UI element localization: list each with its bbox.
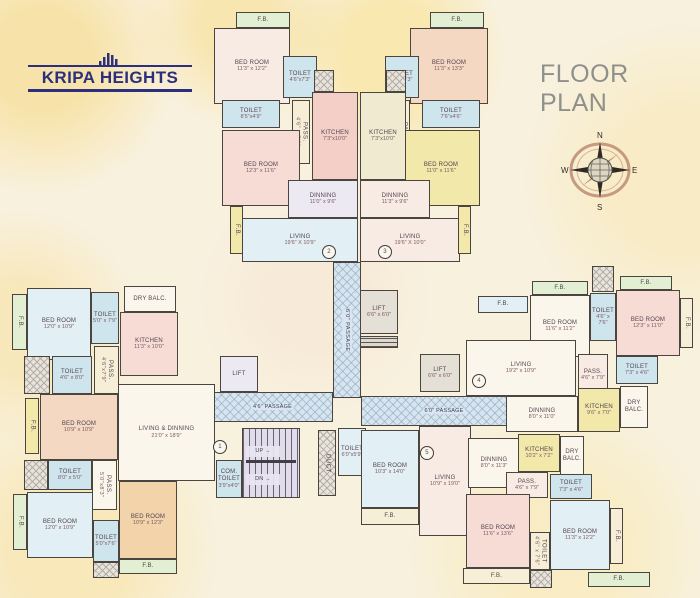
unit-1-badge: 1	[213, 440, 227, 454]
toilet-r2-label: TOILET	[626, 364, 648, 371]
dinning-t2-label: DINNING	[310, 193, 337, 200]
duct-l2	[24, 460, 48, 490]
kitchen-t2: KITCHEN7'3"x10'0"	[312, 92, 358, 180]
kitchen-t3-label: KITCHEN	[369, 130, 397, 137]
fb-r4-label: F.B.	[683, 317, 690, 329]
fb-u5d-label: F.B.	[613, 576, 624, 583]
unit-4-badge-label: 4	[477, 378, 481, 385]
toilet-r2: TOILET7'3" x 4'6"	[616, 356, 658, 384]
fb-side-t2: F.B.	[230, 206, 243, 254]
bedroom-r2-label: BED ROOM	[631, 317, 665, 324]
toilet-t2b: TOILET8'5"x4'9"	[222, 100, 280, 128]
fb-side-t2-label: F.B.	[233, 224, 240, 236]
toilet-l3-label: TOILET	[59, 469, 81, 476]
kitchen-u5-dims: 10'2" x 7'2"	[525, 453, 552, 459]
fb-r3: F.B.	[620, 276, 672, 290]
bedroom-t2: BED ROOM11'3" x 12'2"	[214, 28, 290, 104]
fb-r2-label: F.B.	[554, 285, 565, 292]
stairs-dn-label-label: DN →	[255, 476, 271, 482]
passage-vertical: 6'0" PASSAGE	[333, 262, 361, 398]
living-t3-dims: 19'6" X 10'0"	[394, 240, 425, 246]
dinning-t2-dims: 11'0" x 9'6"	[310, 199, 337, 205]
toilet-l4-dims: 5'0"x7'6"	[96, 541, 117, 547]
pass-l2-label: PASS.	[104, 475, 111, 495]
toilet-l4-label: TOILET	[95, 535, 117, 542]
toilet-u5b-dims: 4'6" x 7'6"	[534, 536, 540, 566]
duct-l1	[24, 356, 50, 394]
lift-right: LIFT6'6" x 6'0"	[420, 354, 460, 392]
fb-l1: F.B.	[12, 294, 27, 350]
bedroom-u5a-label: BED ROOM	[373, 463, 407, 470]
duct-stairs-label: DUCT	[324, 454, 331, 473]
dinning-r1-label: DINNING	[529, 408, 556, 415]
kitchen-t2-dims: 7'3"x10'0"	[323, 136, 347, 142]
fb-l3: F.B.	[13, 494, 27, 550]
toilet-u5a-label: TOILET	[560, 480, 582, 487]
lift-top-dims: 6'6" x 6'0"	[367, 312, 391, 318]
toilet-r2-dims: 7'3" x 4'6"	[625, 370, 649, 376]
bedroom-l2-dims: 10'9" x 10'9"	[64, 427, 94, 433]
bedroom-u5a-dims: 10'3" x 14'0"	[375, 469, 405, 475]
living-t3-label: LIVING	[400, 234, 421, 241]
bedroom-l1: BED ROOM12'0" x 10'9"	[27, 288, 91, 360]
toilet-t3b-label: TOILET	[440, 108, 462, 115]
unit-3-badge: 3	[378, 245, 392, 259]
toilet-u5a: TOILET7'3" x 4'6"	[550, 474, 592, 499]
kitchen-u5: KITCHEN10'2" x 7'2"	[518, 434, 560, 472]
passage-left-label: 4'6" PASSAGE	[251, 404, 294, 410]
lift-left: LIFT	[220, 356, 258, 392]
toilet-t2b-dims: 8'5"x4'9"	[241, 114, 262, 120]
bedroom-t2b-dims: 12'3" x 11'6"	[246, 168, 276, 174]
toilet-l1-dims: 5'0" x 7'9"	[93, 318, 117, 324]
drybalc-l1-label: DRY BALC.	[133, 296, 166, 303]
bedroom-l2: BED ROOM10'9" x 10'9"	[40, 394, 118, 460]
living-t2: LIVING19'6" X 10'9"	[242, 218, 358, 262]
dinning-r1-dims: 8'0" x 11'0"	[529, 414, 556, 420]
floor-plan-page: KRIPA HEIGHTS FLOOR PLAN N E S W F.B.BED…	[0, 0, 700, 598]
bedroom-l4-label: BED ROOM	[131, 514, 165, 521]
pass-l2: PASS.5'0"x8'3"	[92, 460, 117, 510]
fb-u5a: F.B.	[361, 508, 419, 525]
toilet-t3b: TOILET7'6"x4'6"	[422, 100, 480, 128]
fb-side-t3-label: F.B.	[461, 224, 468, 236]
fb-l2-label: F.B.	[29, 420, 36, 432]
toilet-u5a-dims: 7'3" x 4'6"	[559, 487, 583, 493]
fb-top-left: F.B.	[236, 12, 290, 28]
kitchen-t2-label: KITCHEN	[321, 130, 349, 137]
unit-3-badge-label: 3	[383, 249, 387, 256]
pass-t2-label: PASS.	[301, 122, 308, 142]
bedroom-t3b-label: BED ROOM	[424, 162, 458, 169]
pass-l2-dims: 5'0"x8'3"	[98, 472, 104, 498]
drybalc-r1-label: DRY BALC.	[621, 400, 647, 413]
duct-stairs: DUCT	[318, 430, 336, 496]
unit-5-badge: 5	[420, 446, 434, 460]
fb-l1-label: F.B.	[16, 316, 23, 328]
living-r1-label: LIVING	[511, 362, 532, 369]
unit-2-badge: 2	[322, 245, 336, 259]
lift-left-label: LIFT	[232, 371, 245, 378]
kitchen-t3: KITCHEN7'3"x10'0"	[360, 92, 406, 180]
lift-right-dims: 6'6" x 6'0"	[428, 373, 452, 379]
living-l1-dims: 21'0" x 18'9"	[151, 433, 181, 439]
stairs-up-label: UP →	[246, 446, 280, 457]
bedroom-u5a: BED ROOM10'3" x 14'0"	[361, 430, 419, 508]
com-toilet-dims: 3'9"x4'0"	[219, 483, 240, 489]
bedroom-t3-dims: 11'3" x 13'3"	[434, 66, 464, 72]
bedroom-l4: BED ROOM10'9" x 12'3"	[119, 481, 177, 559]
bedroom-u5b: BED ROOM11'6" x 13'6"	[466, 494, 530, 568]
toilet-l3: TOILET8'0" x 5'0"	[48, 460, 92, 490]
drybalc-l1: DRY BALC.	[124, 286, 176, 312]
fb-l4: F.B.	[119, 559, 177, 574]
fb-u5b-label: F.B.	[613, 530, 620, 542]
living-t2-dims: 19'6" X 10'9"	[284, 240, 315, 246]
unit-2-badge-label: 2	[327, 249, 331, 256]
bedroom-l3: BED ROOM12'0" x 10'9"	[27, 492, 93, 558]
toilet-u5b-label: TOILET	[540, 539, 547, 563]
com-toilet: COM. TOILET3'9"x4'0"	[216, 460, 242, 498]
kitchen-l1-label: KITCHEN	[135, 338, 163, 345]
pass-u5-dims: 4'6" x 7'9"	[515, 485, 539, 491]
bedroom-u5b-dims: 11'6" x 13'6"	[483, 531, 513, 537]
bedroom-l1-dims: 12'0" x 10'9"	[44, 324, 74, 330]
pass-u5-label: PASS.	[518, 479, 536, 486]
bedroom-t3-label: BED ROOM	[432, 60, 466, 67]
fb-side-t3: F.B.	[458, 206, 471, 254]
bedroom-r1-label: BED ROOM	[543, 320, 577, 327]
toilet-r1: TOILET4'6" x 7'6"	[590, 293, 616, 341]
kitchen-l1: KITCHEN11'3" x 10'0"	[120, 312, 178, 376]
living-u5-label: LIVING	[435, 475, 456, 482]
living-r1: LIVING19'2" x 10'9"	[466, 340, 576, 396]
living-r1-dims: 19'2" x 10'9"	[506, 368, 536, 374]
bedroom-t2-label: BED ROOM	[235, 60, 269, 67]
living-l1: LIVING & DINNING21'0" x 18'9"	[118, 384, 215, 481]
pass-r1-label: PASS.	[584, 369, 602, 376]
stairs	[242, 428, 300, 498]
bedroom-r2-dims: 12'3" x 11'0"	[633, 323, 663, 329]
kitchen-l1-dims: 11'3" x 10'0"	[134, 344, 164, 350]
passage-vertical-label: 6'0" PASSAGE	[342, 309, 352, 352]
drybalc-u5: DRY BALC.	[560, 436, 584, 476]
lift-top: LIFT6'6" x 6'0"	[360, 290, 398, 334]
passage-right: 6'0" PASSAGE	[361, 396, 527, 426]
toilet-u5b: TOILET4'6" x 7'6"	[530, 532, 550, 570]
stairs-dn-label: DN →	[246, 474, 280, 485]
bedroom-t2-dims: 11'3" x 12'2"	[237, 66, 267, 72]
toilet-core-dims: 6'0"x5'9"	[342, 452, 363, 458]
fb-r4: F.B.	[680, 298, 693, 348]
drybalc-r1: DRY BALC.	[620, 386, 648, 428]
duct-top-a	[314, 70, 334, 92]
toilet-l2: TOILET4'6" x 8'0"	[52, 356, 92, 394]
pass-r1-dims: 4'6" x 7'9"	[581, 375, 605, 381]
toilet-t3b-dims: 7'6"x4'6"	[441, 114, 462, 120]
fb-l2: F.B.	[25, 398, 39, 454]
bedroom-l3-label: BED ROOM	[43, 519, 77, 526]
fb-r2: F.B.	[532, 281, 588, 295]
duct-top-b	[386, 70, 406, 92]
fb-u5c-label: F.B.	[491, 573, 502, 580]
dinning-u5-dims: 8'0" x 11'3"	[481, 463, 508, 469]
stairs-up-label-label: UP →	[255, 448, 270, 454]
kitchen-u5-label: KITCHEN	[525, 447, 553, 454]
duct-l3	[93, 562, 119, 578]
passage-left: 4'6" PASSAGE	[212, 392, 333, 422]
dinning-r1: DINNING8'0" x 11'0"	[506, 396, 578, 432]
bedroom-l4-dims: 10'9" x 12'3"	[133, 520, 163, 526]
fb-top-right-label: F.B.	[451, 17, 462, 24]
lift-top-label: LIFT	[372, 306, 385, 313]
fb-top-right: F.B.	[430, 12, 484, 28]
unit-5-badge-label: 5	[425, 450, 429, 457]
bedroom-t3: BED ROOM11'3" x 13'3"	[410, 28, 488, 104]
living-l1-label: LIVING & DINNING	[139, 426, 195, 433]
toilet-l2-label: TOILET	[61, 369, 83, 376]
duct-r1	[592, 266, 614, 292]
passage-right-label: 6'0" PASSAGE	[423, 408, 466, 414]
fb-top-left-label: F.B.	[257, 17, 268, 24]
fb-u5c: F.B.	[463, 568, 530, 584]
toilet-l4: TOILET5'0"x7'6"	[93, 520, 119, 562]
fb-u5a-label: F.B.	[384, 513, 395, 520]
living-u5: LIVING10'9" x 19'0"	[419, 426, 471, 536]
toilet-l3-dims: 8'0" x 5'0"	[58, 475, 82, 481]
dinning-u5-label: DINNING	[481, 457, 508, 464]
pass-l1: PASS.4'6"x7'9"	[94, 346, 119, 394]
toilet-l2-dims: 4'6" x 8'0"	[60, 375, 84, 381]
drybalc-u5-label: DRY BALC.	[561, 449, 583, 462]
bedroom-t3b-dims: 11'0" x 11'6"	[426, 168, 455, 174]
lift-machine	[360, 336, 398, 348]
bedroom-t2b-label: BED ROOM	[244, 162, 278, 169]
toilet-t2a-dims: 4'6"x7'3"	[290, 77, 311, 83]
living-t3: LIVING19'6" X 10'0"	[360, 218, 460, 262]
pass-l1-dims: 4'6"x7'9"	[100, 357, 106, 383]
bedroom-u5c-label: BED ROOM	[563, 529, 597, 536]
bedroom-r1-dims: 11'6" x 11'2"	[545, 326, 574, 332]
kitchen-r1-label: KITCHEN	[585, 404, 613, 411]
toilet-l1: TOILET5'0" x 7'9"	[91, 292, 119, 344]
lift-right-label: LIFT	[433, 367, 446, 374]
fb-r1: F.B.	[478, 296, 528, 313]
toilet-l1-label: TOILET	[94, 312, 116, 319]
bedroom-l1-label: BED ROOM	[42, 318, 76, 325]
bedroom-l2-label: BED ROOM	[62, 421, 96, 428]
dinning-t3-label: DINNING	[382, 193, 409, 200]
living-u5-dims: 10'9" x 19'0"	[430, 481, 460, 487]
dinning-t3: DINNING11'3" x 9'6"	[360, 180, 430, 218]
kitchen-r1-dims: 9'6" x 7'0"	[587, 410, 611, 416]
kitchen-r1: KITCHEN9'6" x 7'0"	[578, 388, 620, 432]
bedroom-u5c: BED ROOM11'3" x 12'2"	[550, 500, 610, 570]
toilet-r1-label: TOILET	[592, 308, 614, 315]
toilet-core-label: TOILET	[341, 446, 363, 453]
unit-1-badge-label: 1	[218, 444, 222, 451]
bedroom-r2: BED ROOM12'3" x 11'0"	[616, 290, 680, 356]
bedroom-u5c-dims: 11'3" x 12'2"	[565, 535, 595, 541]
bedroom-u5b-label: BED ROOM	[481, 525, 515, 532]
fb-l3-label: F.B.	[17, 516, 24, 528]
bedroom-l3-dims: 12'0" x 10'9"	[45, 525, 75, 531]
fb-l4-label: F.B.	[142, 563, 153, 570]
toilet-t2a-label: TOILET	[289, 71, 311, 78]
floor-plan: F.B.BED ROOM11'3" x 12'2"TOILET4'6"x7'3"…	[0, 0, 700, 598]
fb-r1-label: F.B.	[497, 301, 508, 308]
fb-r3-label: F.B.	[640, 280, 651, 287]
toilet-t2b-label: TOILET	[240, 108, 262, 115]
fb-u5b: F.B.	[610, 508, 623, 564]
living-t2-label: LIVING	[290, 234, 311, 241]
dinning-t2: DINNING11'0" x 9'6"	[288, 180, 358, 218]
dinning-t3-dims: 11'3" x 9'6"	[382, 199, 409, 205]
com-toilet-label: COM. TOILET	[217, 469, 241, 482]
unit-4-badge: 4	[472, 374, 486, 388]
toilet-r1-dims: 4'6" x 7'6"	[591, 314, 615, 326]
pass-l1-label: PASS.	[106, 360, 113, 380]
kitchen-t3-dims: 7'3"x10'0"	[371, 136, 395, 142]
duct-u5	[530, 570, 552, 588]
fb-u5d: F.B.	[588, 572, 650, 587]
